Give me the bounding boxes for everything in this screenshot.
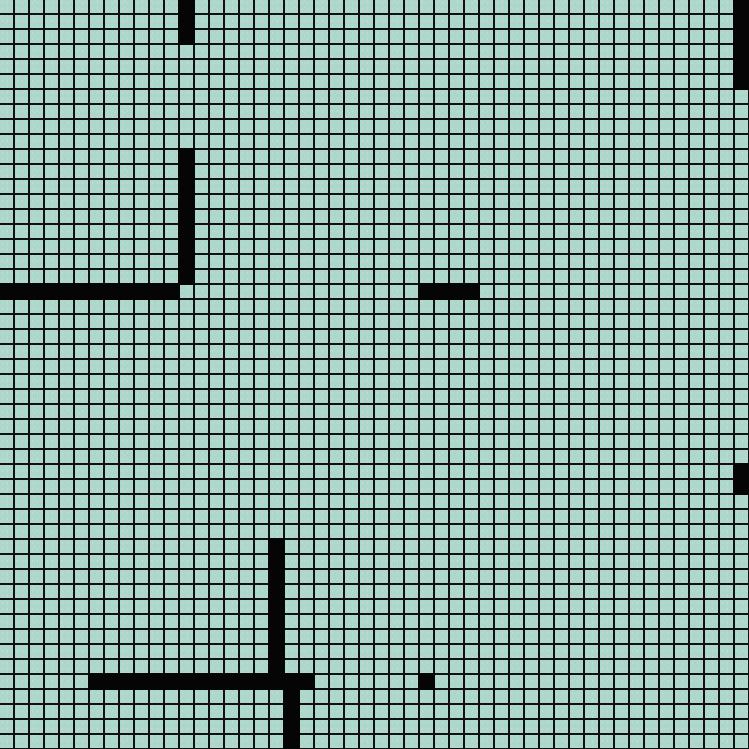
wall-top-vertical	[178, 0, 195, 45]
wall-bottom-horizontal	[88, 673, 315, 690]
wall-right-edge-middle	[733, 463, 749, 495]
wall-left-vertical	[178, 148, 195, 285]
game-board[interactable]	[0, 0, 749, 749]
wall-left-horizontal	[0, 283, 180, 300]
grid-lines	[0, 0, 749, 749]
wall-right-edge-top	[733, 0, 749, 90]
wall-bottom-vertical-lower	[283, 688, 300, 749]
wall-center-horizontal	[418, 283, 480, 300]
wall-bottom-vertical-upper	[268, 538, 285, 675]
wall-dot	[418, 673, 435, 690]
